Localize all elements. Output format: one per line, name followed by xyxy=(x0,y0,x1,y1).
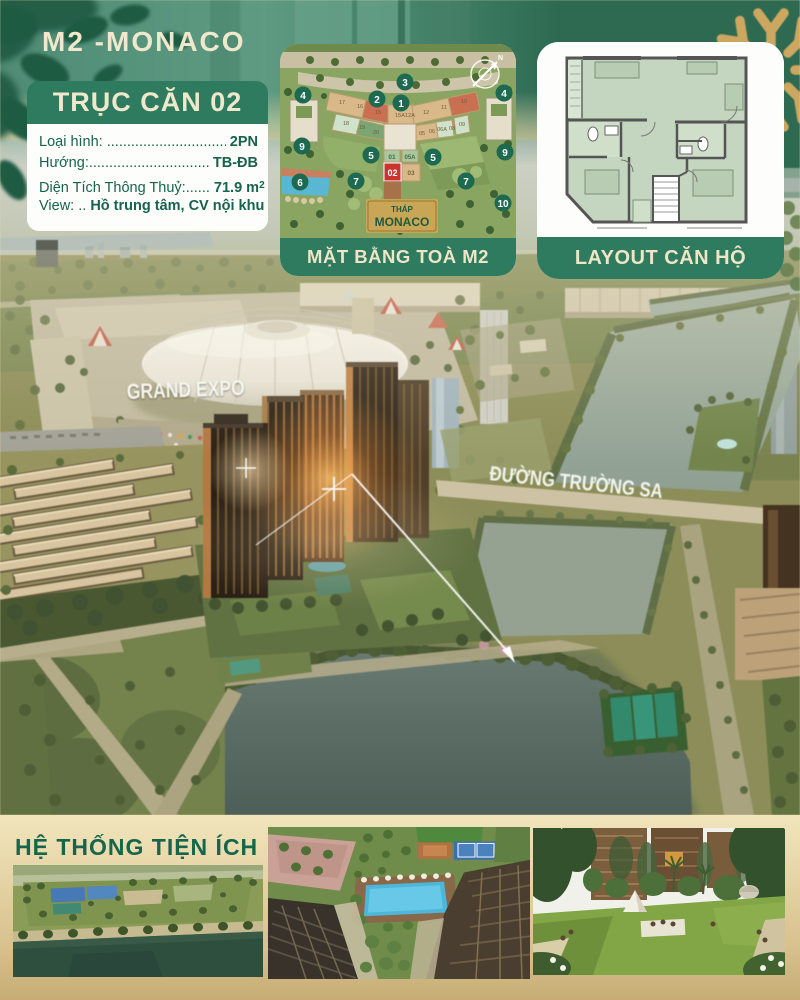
svg-text:11: 11 xyxy=(441,105,447,111)
svg-text:08: 08 xyxy=(449,126,455,132)
svg-text:N: N xyxy=(498,55,503,62)
svg-text:05A: 05A xyxy=(404,155,416,161)
svg-text:15A: 15A xyxy=(395,113,405,119)
svg-text:4: 4 xyxy=(501,89,507,100)
svg-text:7: 7 xyxy=(463,177,469,188)
svg-text:1: 1 xyxy=(398,99,404,110)
svg-text:GRAND EXPO: GRAND EXPO xyxy=(126,376,245,404)
svg-text:17: 17 xyxy=(339,100,345,106)
svg-text:16: 16 xyxy=(357,104,363,110)
svg-text:3: 3 xyxy=(402,78,408,89)
svg-text:2: 2 xyxy=(374,95,380,106)
svg-text:5: 5 xyxy=(368,151,374,162)
svg-text:18: 18 xyxy=(343,121,349,127)
svg-text:06: 06 xyxy=(429,129,435,135)
svg-text:02: 02 xyxy=(387,168,397,178)
svg-text:05: 05 xyxy=(419,131,425,137)
svg-text:5: 5 xyxy=(430,153,436,164)
svg-text:10: 10 xyxy=(497,199,509,210)
svg-text:15: 15 xyxy=(375,110,381,116)
svg-text:7: 7 xyxy=(353,177,359,188)
svg-text:12: 12 xyxy=(423,110,429,116)
svg-text:12A: 12A xyxy=(405,113,415,119)
svg-text:10: 10 xyxy=(461,99,467,105)
svg-text:MONACO: MONACO xyxy=(375,215,430,229)
svg-text:THÁP: THÁP xyxy=(391,205,413,214)
svg-text:03: 03 xyxy=(407,170,415,177)
svg-text:06A: 06A xyxy=(437,127,447,133)
svg-text:09: 09 xyxy=(459,122,465,128)
svg-text:6: 6 xyxy=(297,178,303,189)
svg-text:9: 9 xyxy=(502,148,508,159)
svg-text:9: 9 xyxy=(299,142,305,153)
svg-text:19: 19 xyxy=(359,125,365,131)
svg-text:01: 01 xyxy=(388,154,396,161)
svg-text:4: 4 xyxy=(300,91,306,102)
svg-text:20: 20 xyxy=(373,130,379,136)
